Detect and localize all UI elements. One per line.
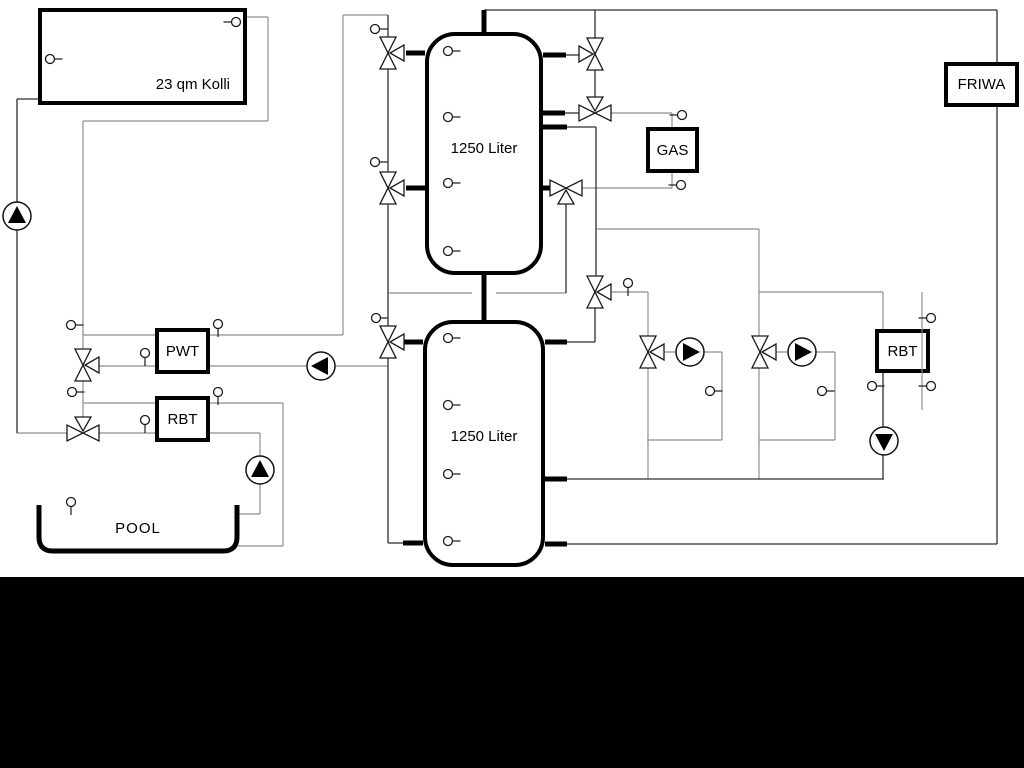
three-way-valve-icon [83,425,99,441]
temperature-sensor-icon [624,279,633,288]
solar-collector-box: 23 qm Kolli [38,8,247,105]
temperature-sensor-icon [818,387,827,396]
gas-boiler-label: GAS [657,142,689,159]
three-way-valve-icon [595,105,611,121]
three-way-valve-icon [550,180,566,196]
three-way-valve-icon [587,97,603,111]
three-way-valve-icon [640,336,656,352]
three-way-valve-icon [380,326,396,342]
temperature-sensor-icon [372,314,381,323]
buffer-tank-1-label: 1250 Liter [429,140,539,157]
gas-boiler-box: GAS [646,127,699,173]
pump-direction-arrow [311,357,328,375]
temperature-sensor-icon [706,387,715,396]
three-way-valve-icon [390,45,404,61]
three-way-valve-icon [380,188,396,204]
temperature-sensor-icon [67,498,76,507]
pump-direction-arrow [795,343,812,361]
buffer-tank-1: 1250 Liter [425,32,543,275]
temperature-sensor-icon [68,388,77,397]
three-way-valve-icon [579,46,593,62]
temperature-sensor-icon [677,181,686,190]
temperature-sensor-icon [371,158,380,167]
temperature-sensor-icon [927,382,936,391]
buffer-tank-2-label: 1250 Liter [427,428,541,445]
rbt-left-box: RBT [155,396,210,442]
three-way-valve-icon [762,344,776,360]
three-way-valve-icon [752,336,768,352]
footer-black-band [0,577,1024,768]
pool-label: POOL [39,520,237,537]
three-way-valve-icon [390,334,404,350]
pump-icon [246,456,274,484]
temperature-sensor-icon [67,321,76,330]
rbt-right-label: RBT [888,343,918,360]
temperature-sensor-icon [214,320,223,329]
temperature-sensor-icon [927,314,936,323]
temperature-sensor-icon [371,25,380,34]
three-way-valve-icon [380,37,396,53]
pump-icon [870,427,898,455]
pwt-heat-exchanger-box: PWT [155,328,210,374]
three-way-valve-icon [597,284,611,300]
pwt-label: PWT [166,343,199,360]
pump-direction-arrow [683,343,700,361]
pump-icon [3,202,31,230]
three-way-valve-icon [85,357,99,373]
pump-icon [788,338,816,366]
rbt-right-box: RBT [875,329,930,373]
three-way-valve-icon [640,352,656,368]
pump-icon [676,338,704,366]
buffer-tank-2: 1250 Liter [423,320,545,567]
pump-icon [307,352,335,380]
three-way-valve-icon [558,190,574,204]
three-way-valve-icon [75,365,91,381]
three-way-valve-icon [75,417,91,431]
three-way-valve-icon [380,172,396,188]
schematic-page: 23 qm Kolli 1250 Liter 1250 Liter GAS FR… [0,0,1024,768]
three-way-valve-icon [75,349,91,365]
rbt-left-label: RBT [168,411,198,428]
three-way-valve-icon [380,342,396,358]
three-way-valve-icon [752,352,768,368]
temperature-sensor-icon [678,111,687,120]
temperature-sensor-icon [141,349,150,358]
three-way-valve-icon [587,38,603,54]
three-way-valve-icon [390,180,404,196]
pump-direction-arrow [8,206,26,223]
three-way-valve-icon [587,276,603,292]
temperature-sensor-icon [214,388,223,397]
three-way-valve-icon [587,54,603,70]
pump-direction-arrow [251,460,269,477]
friwa-station-label: FRIWA [958,76,1006,93]
three-way-valve-icon [579,105,595,121]
friwa-station-box: FRIWA [944,62,1019,107]
three-way-valve-icon [566,180,582,196]
three-way-valve-icon [587,292,603,308]
temperature-sensor-icon [141,416,150,425]
solar-collector-label: 23 qm Kolli [156,76,230,93]
three-way-valve-icon [67,425,83,441]
temperature-sensor-icon [868,382,877,391]
pump-direction-arrow [875,434,893,451]
three-way-valve-icon [380,53,396,69]
three-way-valve-icon [650,344,664,360]
